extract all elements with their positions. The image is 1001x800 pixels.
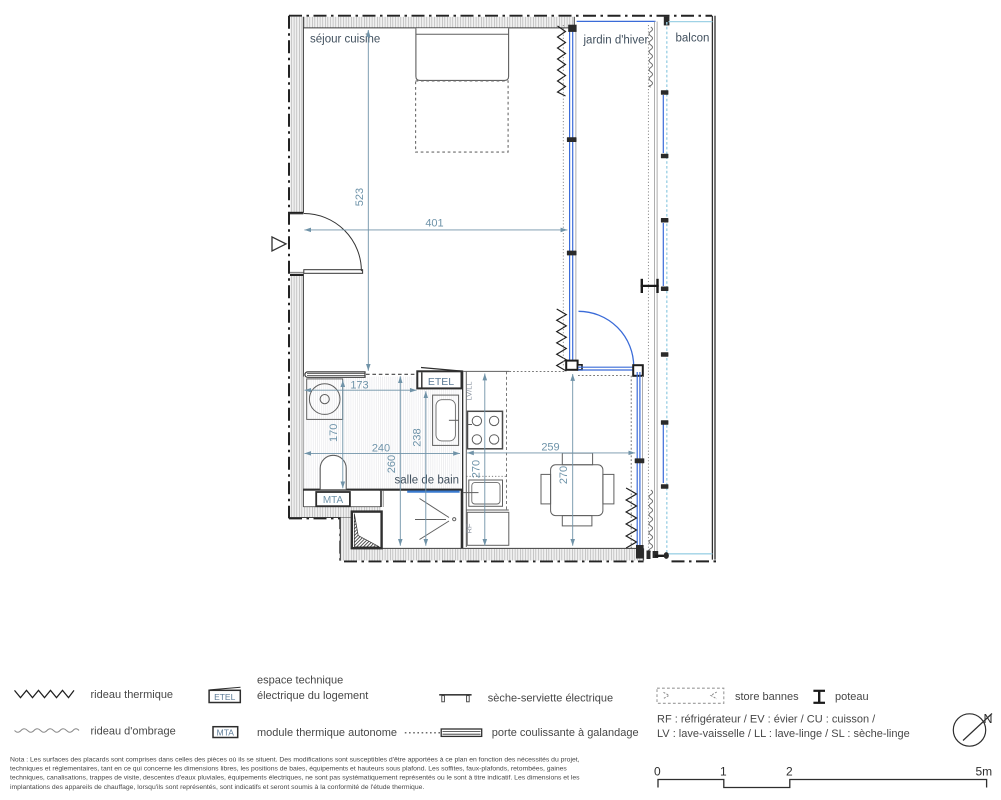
svg-text:401: 401: [425, 217, 443, 229]
svg-text:RF : réfrigérateur / EV : évie: RF : réfrigérateur / EV : évier / CU : c…: [657, 714, 876, 726]
svg-text:techniques et réglementaires,: techniques et réglementaires, tant en ce…: [10, 766, 567, 773]
svg-text:salle de bain: salle de bain: [395, 475, 460, 487]
svg-text:LV/LL: LV/LL: [465, 381, 474, 400]
svg-text:MTA: MTA: [217, 727, 235, 737]
svg-text:2: 2: [786, 765, 793, 779]
svg-text:MTA: MTA: [323, 495, 344, 506]
svg-text:poteau: poteau: [835, 691, 869, 703]
svg-text:sèche-serviette électrique: sèche-serviette électrique: [488, 693, 613, 705]
svg-text:Nota : Les surfaces des placar: Nota : Les surfaces des placards sont co…: [10, 757, 580, 764]
svg-text:porte coulissante à galandage: porte coulissante à galandage: [492, 727, 639, 739]
svg-text:RF: RF: [465, 523, 474, 533]
svg-text:rideau thermique: rideau thermique: [91, 689, 174, 701]
svg-text:173: 173: [350, 379, 368, 391]
svg-text:270: 270: [558, 466, 570, 484]
svg-text:ETEL: ETEL: [214, 692, 236, 702]
svg-text:module thermique autonome: module thermique autonome: [257, 727, 397, 739]
svg-text:259: 259: [541, 442, 559, 454]
svg-text:électrique du logement: électrique du logement: [257, 690, 368, 702]
svg-text:store bannes: store bannes: [735, 691, 799, 703]
svg-text:séjour cuisine: séjour cuisine: [310, 34, 380, 46]
svg-text:270: 270: [470, 460, 482, 478]
svg-text:techniques, canalisations, tra: techniques, canalisations, trappes de vi…: [10, 775, 580, 782]
svg-text:170: 170: [328, 424, 340, 442]
svg-text:rideau d'ombrage: rideau d'ombrage: [91, 726, 176, 738]
svg-text:N: N: [984, 712, 993, 726]
svg-text:240: 240: [372, 442, 390, 454]
svg-text:238: 238: [411, 428, 423, 446]
svg-text:523: 523: [354, 188, 366, 206]
svg-text:jardin d'hiver: jardin d'hiver: [583, 35, 649, 47]
svg-text:implantations des appareils de: implantations des appareils de chauffage…: [10, 784, 424, 791]
svg-text:balcon: balcon: [676, 33, 710, 45]
svg-text:LV : lave-vaisselle / LL : lav: LV : lave-vaisselle / LL : lave-linge / …: [657, 728, 910, 740]
svg-text:5m: 5m: [976, 765, 993, 779]
svg-text:ETEL: ETEL: [428, 376, 454, 388]
svg-text:0: 0: [654, 765, 661, 779]
svg-text:260: 260: [386, 455, 398, 473]
svg-text:1: 1: [720, 765, 727, 779]
svg-text:espace technique: espace technique: [257, 675, 343, 687]
